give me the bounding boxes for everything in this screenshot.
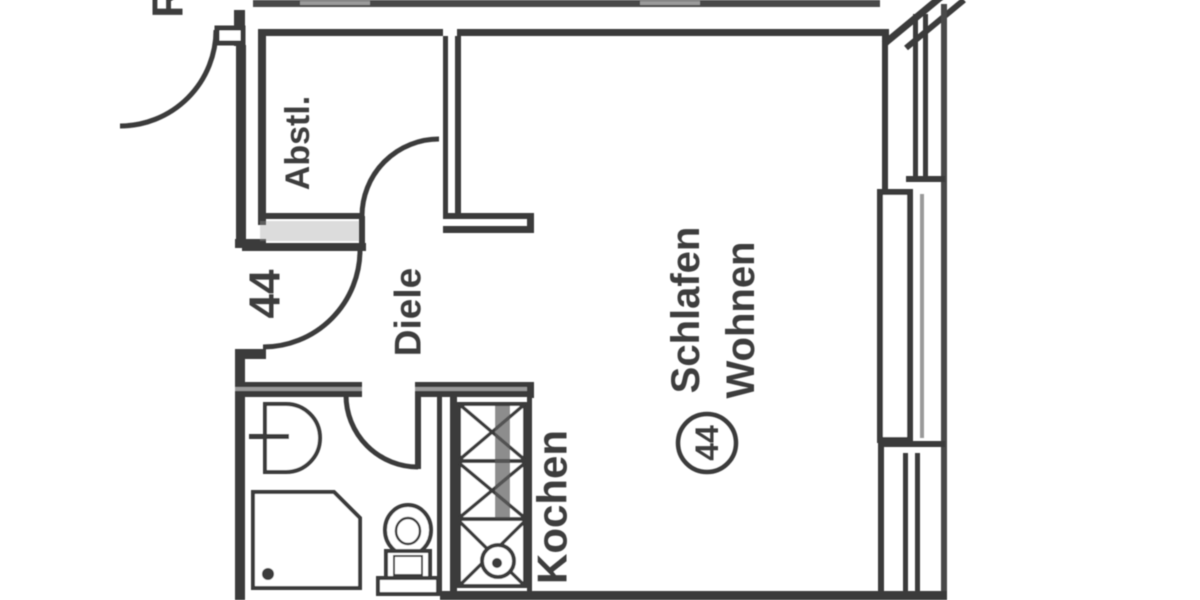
- bath-kitchen-divider-face-2: [450, 391, 457, 591]
- wall-top-inner-face-left: [258, 29, 443, 36]
- window-upper-glazing-line-2: [923, 14, 928, 179]
- label-hallway: Diele: [388, 268, 429, 356]
- bathroom-fixtures: [249, 404, 438, 594]
- wardrobe-stub-wall: [443, 213, 534, 233]
- window-upper-glazing-line-1: [913, 14, 918, 179]
- window-lower-sill: [878, 441, 945, 447]
- storage-door-jamb: [359, 216, 365, 251]
- label-living-line1: Schlafen: [664, 227, 708, 394]
- bath-door-swing-arc: [346, 395, 418, 467]
- wall-top-scan-fade-2: [640, 1, 700, 5]
- window-middle-glazing-line: [920, 194, 924, 438]
- wall-top-inner-face-right: [457, 29, 889, 36]
- label-partial-room-r: R: [144, 0, 193, 18]
- stub-wall-end-cap: [527, 213, 534, 233]
- kitchen-top-wall-face-1: [415, 382, 534, 387]
- entry-door-stub: [217, 28, 243, 43]
- window-lower-glazing-line-2: [915, 453, 920, 592]
- stub-wall-bottom-face: [443, 226, 534, 233]
- window-middle-frame-box: [880, 192, 910, 440]
- wall-bottom-band: [440, 591, 947, 600]
- corridor-door-swing-arc: [120, 30, 216, 126]
- label-kitchen: Kochen: [529, 430, 576, 584]
- window-lower-glazing-line-1: [903, 453, 908, 592]
- storage-bottom-wall-face-2: [242, 243, 366, 251]
- wall-top-scan-fade-1: [300, 1, 370, 5]
- counter-divider-2: [457, 517, 527, 521]
- window-upper-sill: [906, 176, 945, 182]
- bath-top-wall-scan-fill: [235, 387, 362, 391]
- wall-right-inner-face-lower: [878, 443, 884, 591]
- wall-right-outer-face: [941, 4, 947, 600]
- bath-kitchen-divider-face-1: [437, 391, 442, 591]
- storage-room-walls: [242, 33, 461, 251]
- kitchen-top-wall-scan-fill: [415, 387, 534, 391]
- storage-left-wall: [258, 33, 266, 225]
- toilet-base: [378, 578, 438, 594]
- label-living-line2: Wohnen: [719, 241, 763, 398]
- washbasin-tap-tick: [263, 424, 267, 450]
- kitchen-top-wall-end-cap: [527, 382, 534, 398]
- stub-wall-top-face: [443, 213, 534, 219]
- toilet-bowl: [385, 505, 431, 555]
- label-entrance-number: 44: [241, 269, 290, 318]
- floor-plan-svg: R Abstl. 44 Diele Kochen Schlafen Wohnen…: [0, 0, 1200, 600]
- storage-right-wall-face-2: [455, 36, 461, 216]
- counter-scan-smudge: [495, 406, 510, 518]
- storage-right-wall-face-1: [443, 36, 448, 216]
- kitchen-sink-drain: [492, 558, 502, 568]
- bath-door-leaf: [415, 391, 421, 469]
- kitchen-top-wall-face-2: [415, 391, 534, 397]
- bath-top-wall-face-2: [235, 391, 362, 397]
- storage-bottom-wall-scan-fill: [260, 221, 360, 241]
- floor-plan-scan: R Abstl. 44 Diele Kochen Schlafen Wohnen…: [0, 0, 1200, 600]
- label-living-circle-number: 44: [689, 425, 725, 461]
- counter-divider-1: [457, 459, 527, 463]
- right-wall-windows: [878, 14, 945, 592]
- kitchen-fixtures: [457, 398, 532, 591]
- washbasin-tap-bar: [249, 434, 289, 439]
- wall-right-inner-face-upper: [882, 36, 888, 189]
- storage-door-swing-arc: [362, 139, 439, 216]
- label-storage-room: Abstl.: [279, 96, 317, 190]
- shower-drain: [262, 568, 274, 580]
- storage-bottom-wall-face-1: [258, 213, 363, 219]
- wall-left-upper: [236, 45, 246, 244]
- bath-top-wall-face-1: [235, 382, 362, 387]
